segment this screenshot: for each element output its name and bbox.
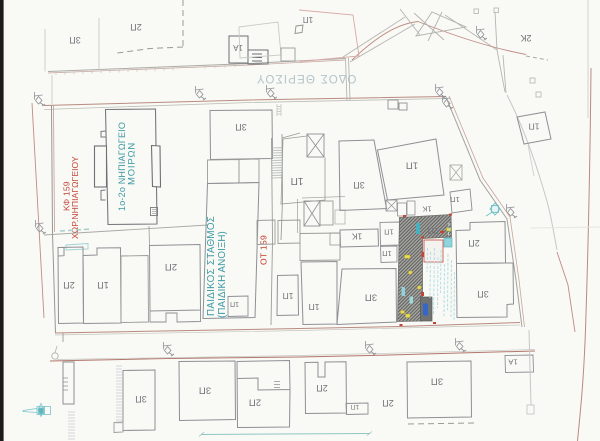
svg-text:2Π: 2Π	[382, 398, 394, 408]
svg-text:ΠΑΙΔΙΚΟΣ ΣΤΑΘΜΟΣ: ΠΑΙΔΙΚΟΣ ΣΤΑΘΜΟΣ	[206, 216, 217, 316]
svg-text:2Π: 2Π	[316, 383, 328, 393]
svg-text:1Π: 1Π	[230, 300, 239, 307]
svg-text:1Π: 1Π	[529, 122, 540, 132]
svg-text:(ΠΑΙΔΙΚΗ ΑΝΟΙΞΗ): (ΠΑΙΔΙΚΗ ΑΝΟΙΞΗ)	[217, 231, 228, 318]
svg-text:2Π: 2Π	[428, 226, 439, 236]
svg-text:3Π: 3Π	[353, 180, 365, 190]
svg-text:2Π: 2Π	[165, 261, 177, 272]
svg-text:1ο-2ο ΝΗΠΙΑΓΩΓΕΙΟ: 1ο-2ο ΝΗΠΙΑΓΩΓΕΙΟ	[117, 122, 127, 211]
svg-text:1Π: 1Π	[303, 15, 313, 24]
svg-text:1Κ: 1Κ	[422, 205, 431, 214]
svg-text:1Π: 1Π	[351, 403, 360, 410]
svg-text:2Π: 2Π	[130, 22, 142, 32]
svg-text:1Κ: 1Κ	[351, 232, 362, 242]
svg-text:1Π: 1Π	[384, 228, 394, 237]
svg-text:1Α: 1Α	[508, 358, 517, 367]
svg-text:1Π: 1Π	[382, 249, 392, 258]
svg-text:3Π: 3Π	[477, 289, 489, 299]
svg-text:3Π: 3Π	[431, 376, 443, 387]
svg-text:3Π: 3Π	[235, 122, 247, 132]
svg-text:ΜΟΙΡΩΝ: ΜΟΙΡΩΝ	[127, 142, 138, 185]
svg-text:2Π: 2Π	[249, 397, 261, 408]
svg-text:3Π: 3Π	[69, 35, 81, 45]
svg-text:2Π: 2Π	[63, 280, 75, 290]
svg-text:1Π: 1Π	[450, 195, 460, 204]
svg-text:1Π: 1Π	[97, 280, 109, 290]
svg-text:3Π: 3Π	[135, 394, 147, 404]
svg-text:3Π: 3Π	[365, 292, 377, 303]
svg-text:1Π: 1Π	[309, 302, 320, 312]
svg-text:1Α: 1Α	[232, 43, 242, 52]
svg-text:2Π: 2Π	[468, 238, 480, 248]
svg-text:1Π: 1Π	[406, 160, 418, 171]
svg-text:ΧΩΡ.ΝΗΠΙΑΓΩΓΕΙΟΥ: ΧΩΡ.ΝΗΠΙΑΓΩΓΕΙΟΥ	[70, 156, 80, 239]
svg-text:2Κ: 2Κ	[520, 33, 531, 43]
svg-text:ΟΤ 159: ΟΤ 159	[259, 235, 269, 265]
svg-text:ΟΔΟΣ ΘΕΡΙΣΟΥ: ΟΔΟΣ ΘΕΡΙΣΟΥ	[256, 72, 357, 84]
svg-text:3Π: 3Π	[199, 385, 211, 396]
svg-text:1Π: 1Π	[291, 175, 304, 186]
svg-text:1Π: 1Π	[283, 291, 294, 301]
